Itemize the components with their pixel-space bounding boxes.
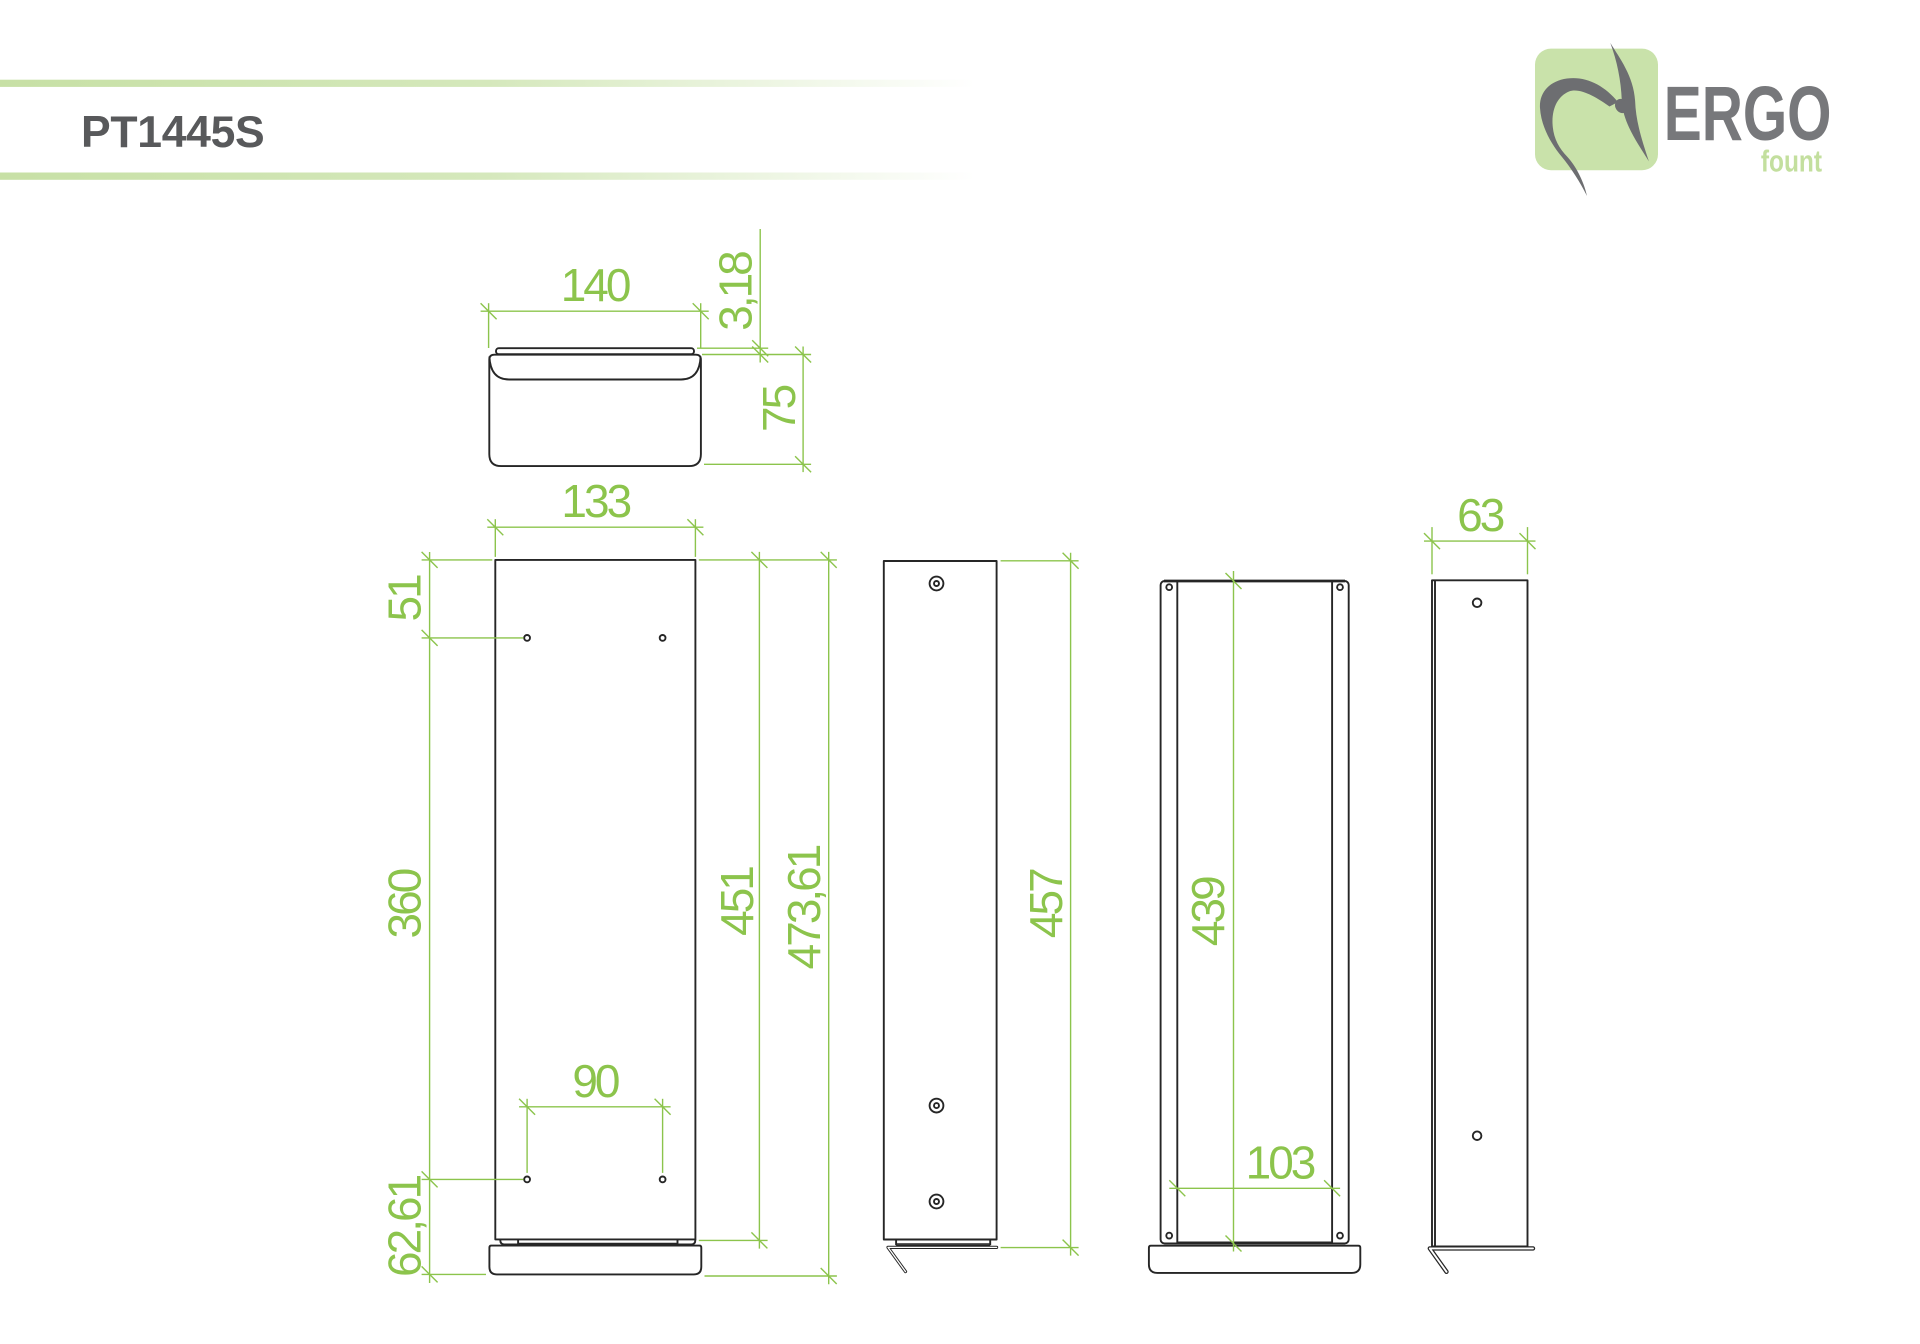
svg-text:451: 451 [711,867,763,936]
svg-text:103: 103 [1246,1136,1315,1188]
svg-text:51: 51 [379,575,431,622]
svg-text:133: 133 [561,475,630,527]
svg-text:fount: fount [1761,144,1822,178]
svg-text:75: 75 [753,385,805,432]
svg-text:90: 90 [572,1055,619,1107]
svg-text:3,18: 3,18 [710,252,762,331]
svg-text:439: 439 [1182,877,1234,946]
svg-text:140: 140 [561,259,630,311]
svg-text:457: 457 [1020,869,1072,938]
svg-text:473,61: 473,61 [778,845,830,969]
svg-text:63: 63 [1457,489,1504,541]
svg-text:62,61: 62,61 [379,1175,431,1277]
svg-text:360: 360 [379,869,431,938]
svg-text:PT1445S: PT1445S [81,108,264,157]
